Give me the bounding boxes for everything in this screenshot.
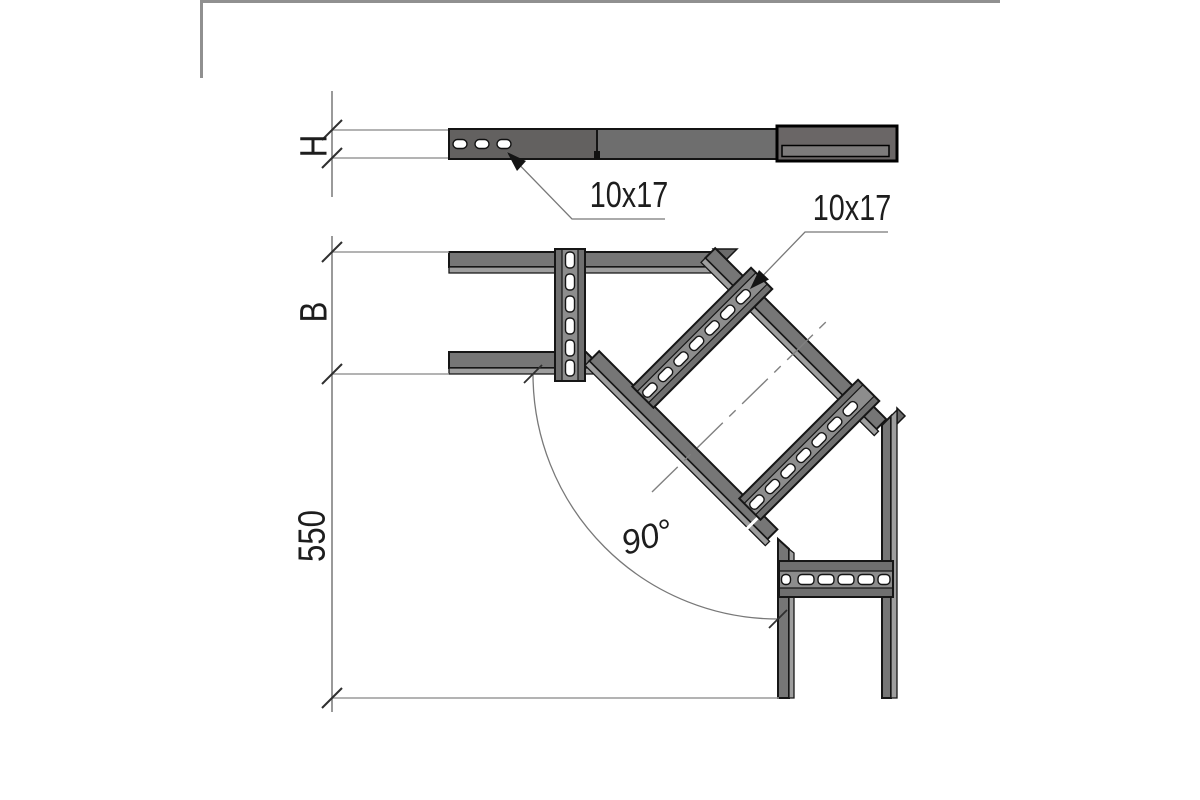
dimension-label-h: H bbox=[293, 135, 335, 158]
rung-left-branch bbox=[555, 249, 585, 381]
profile-joint-mark bbox=[594, 151, 600, 159]
right-rail-edge bbox=[891, 410, 897, 698]
cable-ladder-bend-drawing: H 10x17 bbox=[0, 0, 1200, 800]
slot-size-label-plan: 10x17 bbox=[813, 187, 891, 228]
right-rail bbox=[882, 416, 891, 698]
profile-slots bbox=[453, 140, 511, 149]
leader-line-slot-plan bbox=[750, 232, 888, 289]
rung-bottom-branch bbox=[779, 561, 893, 597]
top-rail-edge bbox=[449, 267, 738, 273]
ladder-rungs bbox=[555, 249, 893, 597]
top-rail bbox=[449, 252, 732, 267]
rung-diagonal-lower bbox=[739, 380, 879, 520]
angle-label: 90° bbox=[617, 512, 677, 563]
dimension-label-b: B bbox=[293, 302, 335, 323]
dimension-label-550: 550 bbox=[291, 510, 333, 562]
side-view: H 10x17 bbox=[293, 91, 897, 219]
outer-miter-tip bbox=[897, 408, 905, 424]
slot-size-label-side: 10x17 bbox=[590, 174, 668, 215]
ladder-rails bbox=[449, 248, 905, 698]
rung-diagonal-upper bbox=[632, 268, 772, 408]
plan-view: B 550 90° 10x17 bbox=[291, 187, 905, 712]
profile-end-channel-flange bbox=[782, 146, 889, 157]
profile-slotted-section bbox=[449, 129, 597, 159]
plan-slot-callout: 10x17 bbox=[750, 187, 891, 289]
page-frame bbox=[200, 0, 1000, 78]
profile-mid-section bbox=[597, 129, 777, 159]
technical-drawing-page: H 10x17 bbox=[0, 0, 1200, 800]
